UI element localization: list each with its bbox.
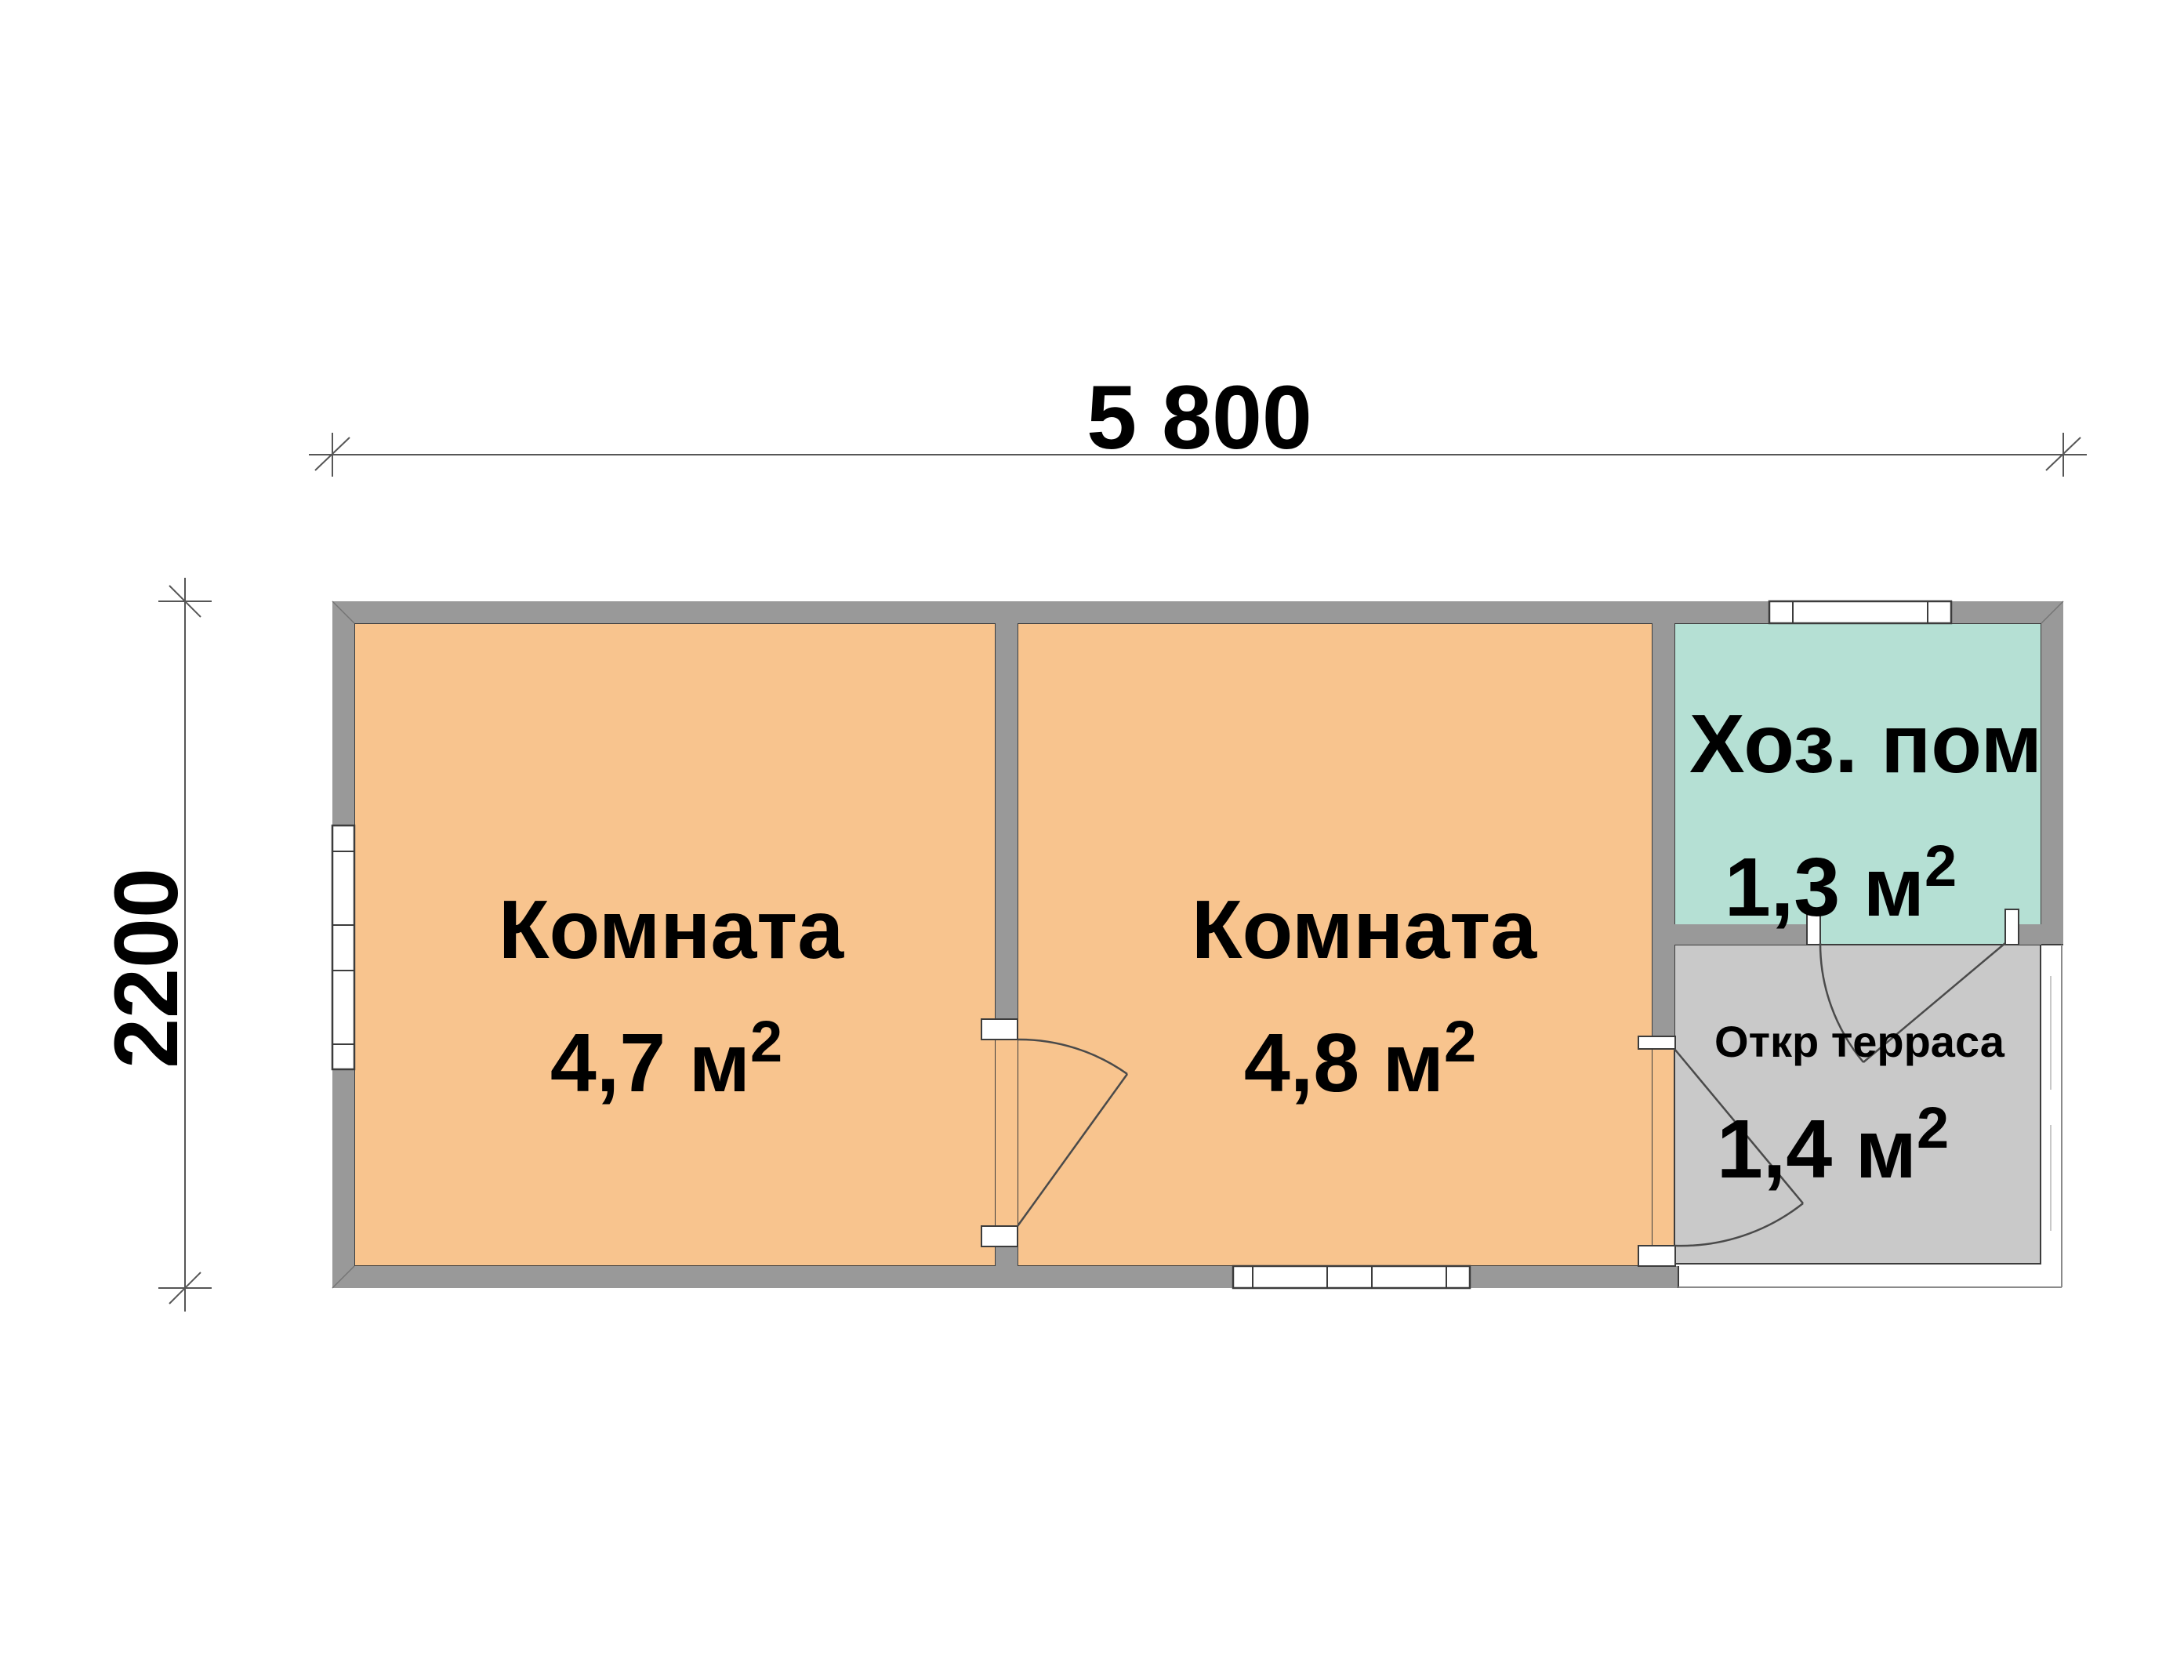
partition-room1-room2-stub: [996, 1246, 1018, 1266]
floor-plan-page: 5 800 2200 Комната 4,7 м2 Комната 4,8 м2…: [0, 0, 2184, 1680]
window-top-frame: [1769, 601, 1951, 623]
room1-area-label: 4,7 м2: [550, 1009, 782, 1109]
room1-name-label: Комната: [499, 884, 844, 976]
dimension-height-label: 2200: [96, 868, 197, 1069]
wall-right: [2041, 601, 2063, 945]
door-room2-terrace-jamb-top: [1638, 1036, 1675, 1049]
utility-name-label: Хоз. пом: [1689, 698, 2042, 790]
dimension-top: 5 800: [309, 368, 2087, 477]
terrace-area-label: 1,4 м2: [1717, 1095, 1949, 1196]
dimension-left: 2200: [96, 578, 212, 1312]
window-left-frame: [332, 825, 354, 1069]
utility-south-wall-right: [2019, 924, 2041, 945]
window-bottom: [1233, 1266, 1470, 1288]
room2-area-value: 4,8 м: [1244, 1017, 1444, 1109]
door-room1-room2-jamb-bottom: [981, 1226, 1018, 1246]
window-top: [1769, 601, 1951, 623]
floor-plan-drawing: 5 800 2200 Комната 4,7 м2 Комната 4,8 м2…: [0, 0, 2184, 1680]
partition-room2-utility: [1653, 623, 1674, 1036]
door3-opening-floor: [1653, 1049, 1674, 1246]
utility-area-value: 1,3 м: [1725, 841, 1925, 934]
room1-area-sup: 2: [750, 1009, 782, 1074]
terrace-area-sup: 2: [1917, 1095, 1949, 1160]
utility-area-label: 1,3 м2: [1725, 833, 1957, 934]
dimension-width-label: 5 800: [1087, 368, 1312, 468]
wall-bottom: [332, 1266, 1678, 1288]
room2-name-label: Комната: [1192, 884, 1537, 976]
terrace-name-label: Откр терраса: [1714, 1017, 2005, 1066]
partition-room1-room2: [996, 623, 1018, 1019]
utility-area-sup: 2: [1925, 833, 1957, 898]
room2-area-sup: 2: [1444, 1009, 1476, 1074]
door-utility-terrace-jamb-right: [2005, 909, 2019, 945]
window-bottom-frame: [1233, 1266, 1470, 1288]
window-left: [332, 825, 354, 1069]
room2-area-label: 4,8 м2: [1244, 1009, 1476, 1109]
door-room2-terrace-jamb-bottom: [1638, 1246, 1675, 1266]
door-room1-room2-jamb-top: [981, 1019, 1018, 1040]
door1-opening-floor: [996, 1040, 1018, 1226]
room1-area-value: 4,7 м: [550, 1017, 750, 1109]
terrace-area-value: 1,4 м: [1717, 1103, 1917, 1196]
